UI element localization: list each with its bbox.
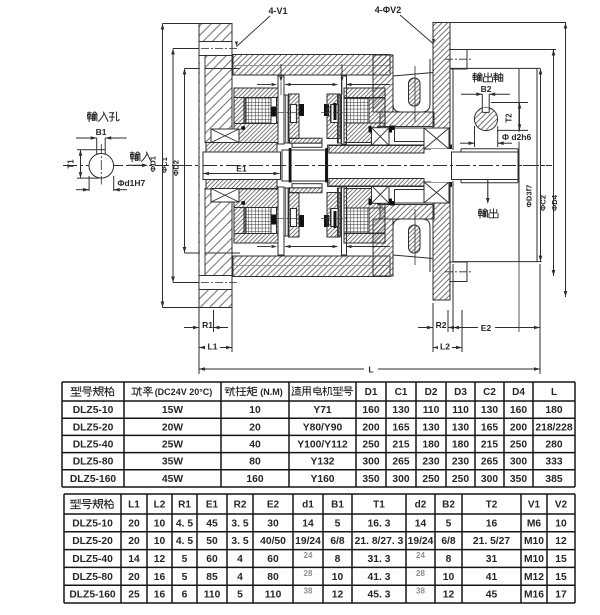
svg-text:12: 12 [555, 536, 567, 547]
svg-text:85: 85 [206, 572, 218, 583]
svg-text:15: 15 [555, 572, 567, 583]
svg-text:250: 250 [422, 474, 439, 485]
svg-text:10: 10 [154, 536, 166, 547]
svg-text:DLZ5-10: DLZ5-10 [73, 405, 114, 416]
svg-text:300: 300 [510, 457, 527, 468]
svg-text:21. 5/27: 21. 5/27 [473, 536, 510, 547]
svg-text:DLZ5-80: DLZ5-80 [72, 572, 113, 583]
svg-text:D1: D1 [365, 387, 378, 398]
svg-text:300: 300 [362, 457, 379, 468]
svg-text:d1: d1 [302, 500, 314, 511]
svg-text:10: 10 [555, 518, 567, 529]
svg-text:DLZ5-10: DLZ5-10 [72, 518, 113, 529]
svg-text:38: 38 [304, 587, 313, 596]
svg-text:130: 130 [392, 405, 409, 416]
svg-text:200: 200 [510, 422, 527, 433]
svg-text:4: 4 [237, 572, 243, 583]
svg-text:16. 3: 16. 3 [368, 518, 391, 529]
svg-text:20: 20 [249, 422, 261, 433]
svg-text:T1: T1 [67, 159, 76, 169]
svg-text:230: 230 [452, 457, 469, 468]
svg-text:Y132: Y132 [310, 457, 334, 468]
svg-text:ΦD1: ΦD1 [149, 155, 158, 172]
svg-text:20: 20 [128, 518, 140, 529]
svg-text:DLZ5-80: DLZ5-80 [73, 457, 114, 468]
svg-text:130: 130 [452, 422, 469, 433]
svg-text:24: 24 [416, 551, 425, 560]
svg-text:250: 250 [362, 440, 379, 451]
svg-text:R1: R1 [178, 500, 191, 511]
svg-text:160: 160 [510, 405, 527, 416]
svg-text:E2: E2 [481, 323, 492, 333]
svg-text:45W: 45W [162, 474, 183, 485]
svg-text:218/228: 218/228 [535, 422, 572, 433]
svg-text:41. 3: 41. 3 [368, 572, 391, 583]
svg-text:28: 28 [304, 569, 313, 578]
svg-text:160: 160 [246, 474, 263, 485]
svg-text:10: 10 [443, 572, 455, 583]
svg-text:60: 60 [206, 554, 218, 565]
svg-text:12: 12 [332, 590, 344, 601]
svg-text:T1: T1 [373, 500, 385, 511]
svg-text:L2: L2 [440, 342, 450, 352]
svg-text:ΦD4: ΦD4 [550, 194, 559, 211]
svg-text:R2: R2 [436, 320, 447, 330]
svg-text:19/24: 19/24 [295, 536, 321, 547]
svg-text:6: 6 [182, 590, 188, 601]
svg-text:50: 50 [206, 536, 218, 547]
svg-text:110: 110 [423, 405, 440, 416]
svg-text:10: 10 [332, 572, 344, 583]
svg-text:350: 350 [510, 474, 527, 485]
svg-text:R2: R2 [234, 500, 247, 511]
svg-text:4-V1: 4-V1 [268, 6, 287, 16]
svg-text:V1: V1 [528, 500, 541, 511]
svg-text:6/8: 6/8 [441, 536, 456, 547]
svg-text:E1: E1 [236, 164, 247, 174]
svg-text:80: 80 [267, 572, 279, 583]
svg-text:Y71: Y71 [313, 405, 332, 416]
svg-text:300: 300 [481, 474, 498, 485]
svg-text:8: 8 [446, 554, 452, 565]
svg-text:(N.M): (N.M) [260, 387, 283, 397]
svg-text:Y160: Y160 [310, 474, 334, 485]
svg-text:T2: T2 [505, 113, 514, 123]
svg-text:M16: M16 [524, 590, 544, 601]
svg-text:L: L [368, 365, 373, 375]
svg-text:D3: D3 [454, 387, 467, 398]
svg-text:Y100/Y112: Y100/Y112 [297, 440, 348, 451]
svg-text:12: 12 [443, 590, 455, 601]
svg-text:215: 215 [481, 440, 498, 451]
svg-text:14: 14 [302, 518, 314, 529]
svg-text:333: 333 [545, 457, 562, 468]
svg-text:40/50: 40/50 [260, 536, 286, 547]
svg-text:M10: M10 [524, 536, 544, 547]
svg-text:110: 110 [265, 590, 282, 601]
svg-text:T2: T2 [486, 500, 498, 511]
svg-text:265: 265 [392, 457, 409, 468]
svg-text:14: 14 [415, 518, 427, 529]
svg-text:10: 10 [154, 518, 166, 529]
svg-text:C1: C1 [395, 387, 408, 398]
svg-text:31. 3: 31. 3 [368, 554, 391, 565]
svg-text:DLZ5-40: DLZ5-40 [72, 554, 113, 565]
svg-text:4: 4 [237, 554, 243, 565]
svg-text:5: 5 [446, 518, 452, 529]
svg-text:21. 8/27. 3: 21. 8/27. 3 [355, 536, 404, 547]
svg-text:B2: B2 [481, 84, 492, 94]
svg-text:DLZ5-160: DLZ5-160 [70, 474, 117, 485]
svg-text:DLZ5-160: DLZ5-160 [69, 590, 116, 601]
svg-text:D2: D2 [425, 387, 438, 398]
svg-text:230: 230 [422, 457, 439, 468]
svg-text:Y80/Y90: Y80/Y90 [303, 422, 343, 433]
svg-text:25W: 25W [162, 440, 183, 451]
svg-text:38: 38 [416, 587, 425, 596]
svg-text:5: 5 [182, 554, 188, 565]
svg-text:10: 10 [249, 405, 261, 416]
svg-text:30: 30 [267, 518, 279, 529]
svg-text:L1: L1 [208, 342, 218, 352]
svg-text:4-ΦV2: 4-ΦV2 [375, 5, 401, 15]
svg-text:24: 24 [304, 551, 313, 560]
svg-text:Φd1H7: Φd1H7 [118, 178, 146, 188]
svg-text:16: 16 [154, 590, 166, 601]
svg-text:15: 15 [555, 554, 567, 565]
svg-text:DLZ5-20: DLZ5-20 [72, 536, 113, 547]
svg-text:DLZ5-40: DLZ5-40 [73, 440, 114, 451]
svg-text:160: 160 [362, 405, 379, 416]
svg-text:45: 45 [486, 590, 498, 601]
svg-text:45. 3: 45. 3 [368, 590, 391, 601]
svg-text:B1: B1 [96, 127, 107, 137]
svg-text:60: 60 [267, 554, 279, 565]
svg-text:DLZ5-20: DLZ5-20 [73, 422, 114, 433]
svg-text:E2: E2 [267, 500, 280, 511]
svg-text:25: 25 [128, 590, 140, 601]
svg-text:180: 180 [545, 405, 562, 416]
svg-text:6/8: 6/8 [330, 536, 345, 547]
svg-text:35W: 35W [162, 457, 183, 468]
svg-text:250: 250 [452, 474, 469, 485]
svg-text:12: 12 [154, 554, 166, 565]
svg-text:L2: L2 [154, 500, 166, 511]
svg-text:B2: B2 [442, 500, 455, 511]
svg-text:28: 28 [416, 569, 425, 578]
svg-text:280: 280 [545, 440, 562, 451]
svg-text:M12: M12 [524, 572, 544, 583]
svg-text:15W: 15W [162, 405, 183, 416]
svg-text:M10: M10 [524, 554, 544, 565]
svg-text:3. 5: 3. 5 [231, 536, 248, 547]
svg-text:ΦD2: ΦD2 [172, 160, 181, 176]
svg-text:ΦD3f7: ΦD3f7 [525, 185, 534, 208]
svg-text:(DC24V 20°C): (DC24V 20°C) [155, 387, 213, 397]
svg-text:3. 5: 3. 5 [231, 518, 248, 529]
svg-text:Φ d2h6: Φ d2h6 [502, 132, 531, 142]
svg-text:31: 31 [486, 554, 498, 565]
svg-text:350: 350 [362, 474, 379, 485]
svg-text:C2: C2 [483, 387, 496, 398]
svg-text:5: 5 [182, 572, 188, 583]
svg-text:40: 40 [249, 440, 261, 451]
svg-text:ΦC2: ΦC2 [539, 195, 548, 211]
svg-text:20: 20 [128, 536, 140, 547]
svg-text:17: 17 [555, 590, 567, 601]
svg-text:45: 45 [206, 518, 218, 529]
svg-text:300: 300 [392, 474, 409, 485]
svg-text:20: 20 [128, 572, 140, 583]
svg-text:16: 16 [154, 572, 166, 583]
svg-text:80: 80 [249, 457, 261, 468]
svg-text:4. 5: 4. 5 [176, 536, 193, 547]
svg-text:250: 250 [510, 440, 527, 451]
svg-text:215: 215 [392, 440, 409, 451]
svg-text:265: 265 [481, 457, 498, 468]
svg-text:ΦC1: ΦC1 [160, 156, 169, 173]
svg-text:D4: D4 [512, 387, 525, 398]
svg-text:E1: E1 [206, 500, 219, 511]
svg-text:41: 41 [486, 572, 498, 583]
svg-text:130: 130 [422, 422, 439, 433]
svg-text:L: L [551, 387, 557, 398]
svg-text:110: 110 [452, 405, 469, 416]
svg-text:16: 16 [486, 518, 498, 529]
svg-text:4. 5: 4. 5 [176, 518, 193, 529]
svg-text:130: 130 [481, 405, 498, 416]
svg-text:L1: L1 [128, 500, 140, 511]
svg-text:R1: R1 [202, 320, 213, 330]
svg-text:180: 180 [422, 440, 439, 451]
svg-text:110: 110 [204, 590, 221, 601]
svg-text:5: 5 [335, 518, 341, 529]
svg-text:V2: V2 [555, 500, 568, 511]
svg-text:20W: 20W [162, 422, 183, 433]
svg-text:14: 14 [128, 554, 140, 565]
svg-text:180: 180 [452, 440, 469, 451]
svg-text:5: 5 [237, 590, 243, 601]
svg-text:d2: d2 [415, 500, 427, 511]
svg-text:165: 165 [481, 422, 498, 433]
svg-text:B1: B1 [331, 500, 344, 511]
svg-text:165: 165 [392, 422, 409, 433]
svg-text:19/24: 19/24 [408, 536, 434, 547]
svg-text:8: 8 [335, 554, 341, 565]
svg-text:200: 200 [362, 422, 379, 433]
svg-text:M6: M6 [527, 518, 542, 529]
svg-text:385: 385 [545, 474, 562, 485]
